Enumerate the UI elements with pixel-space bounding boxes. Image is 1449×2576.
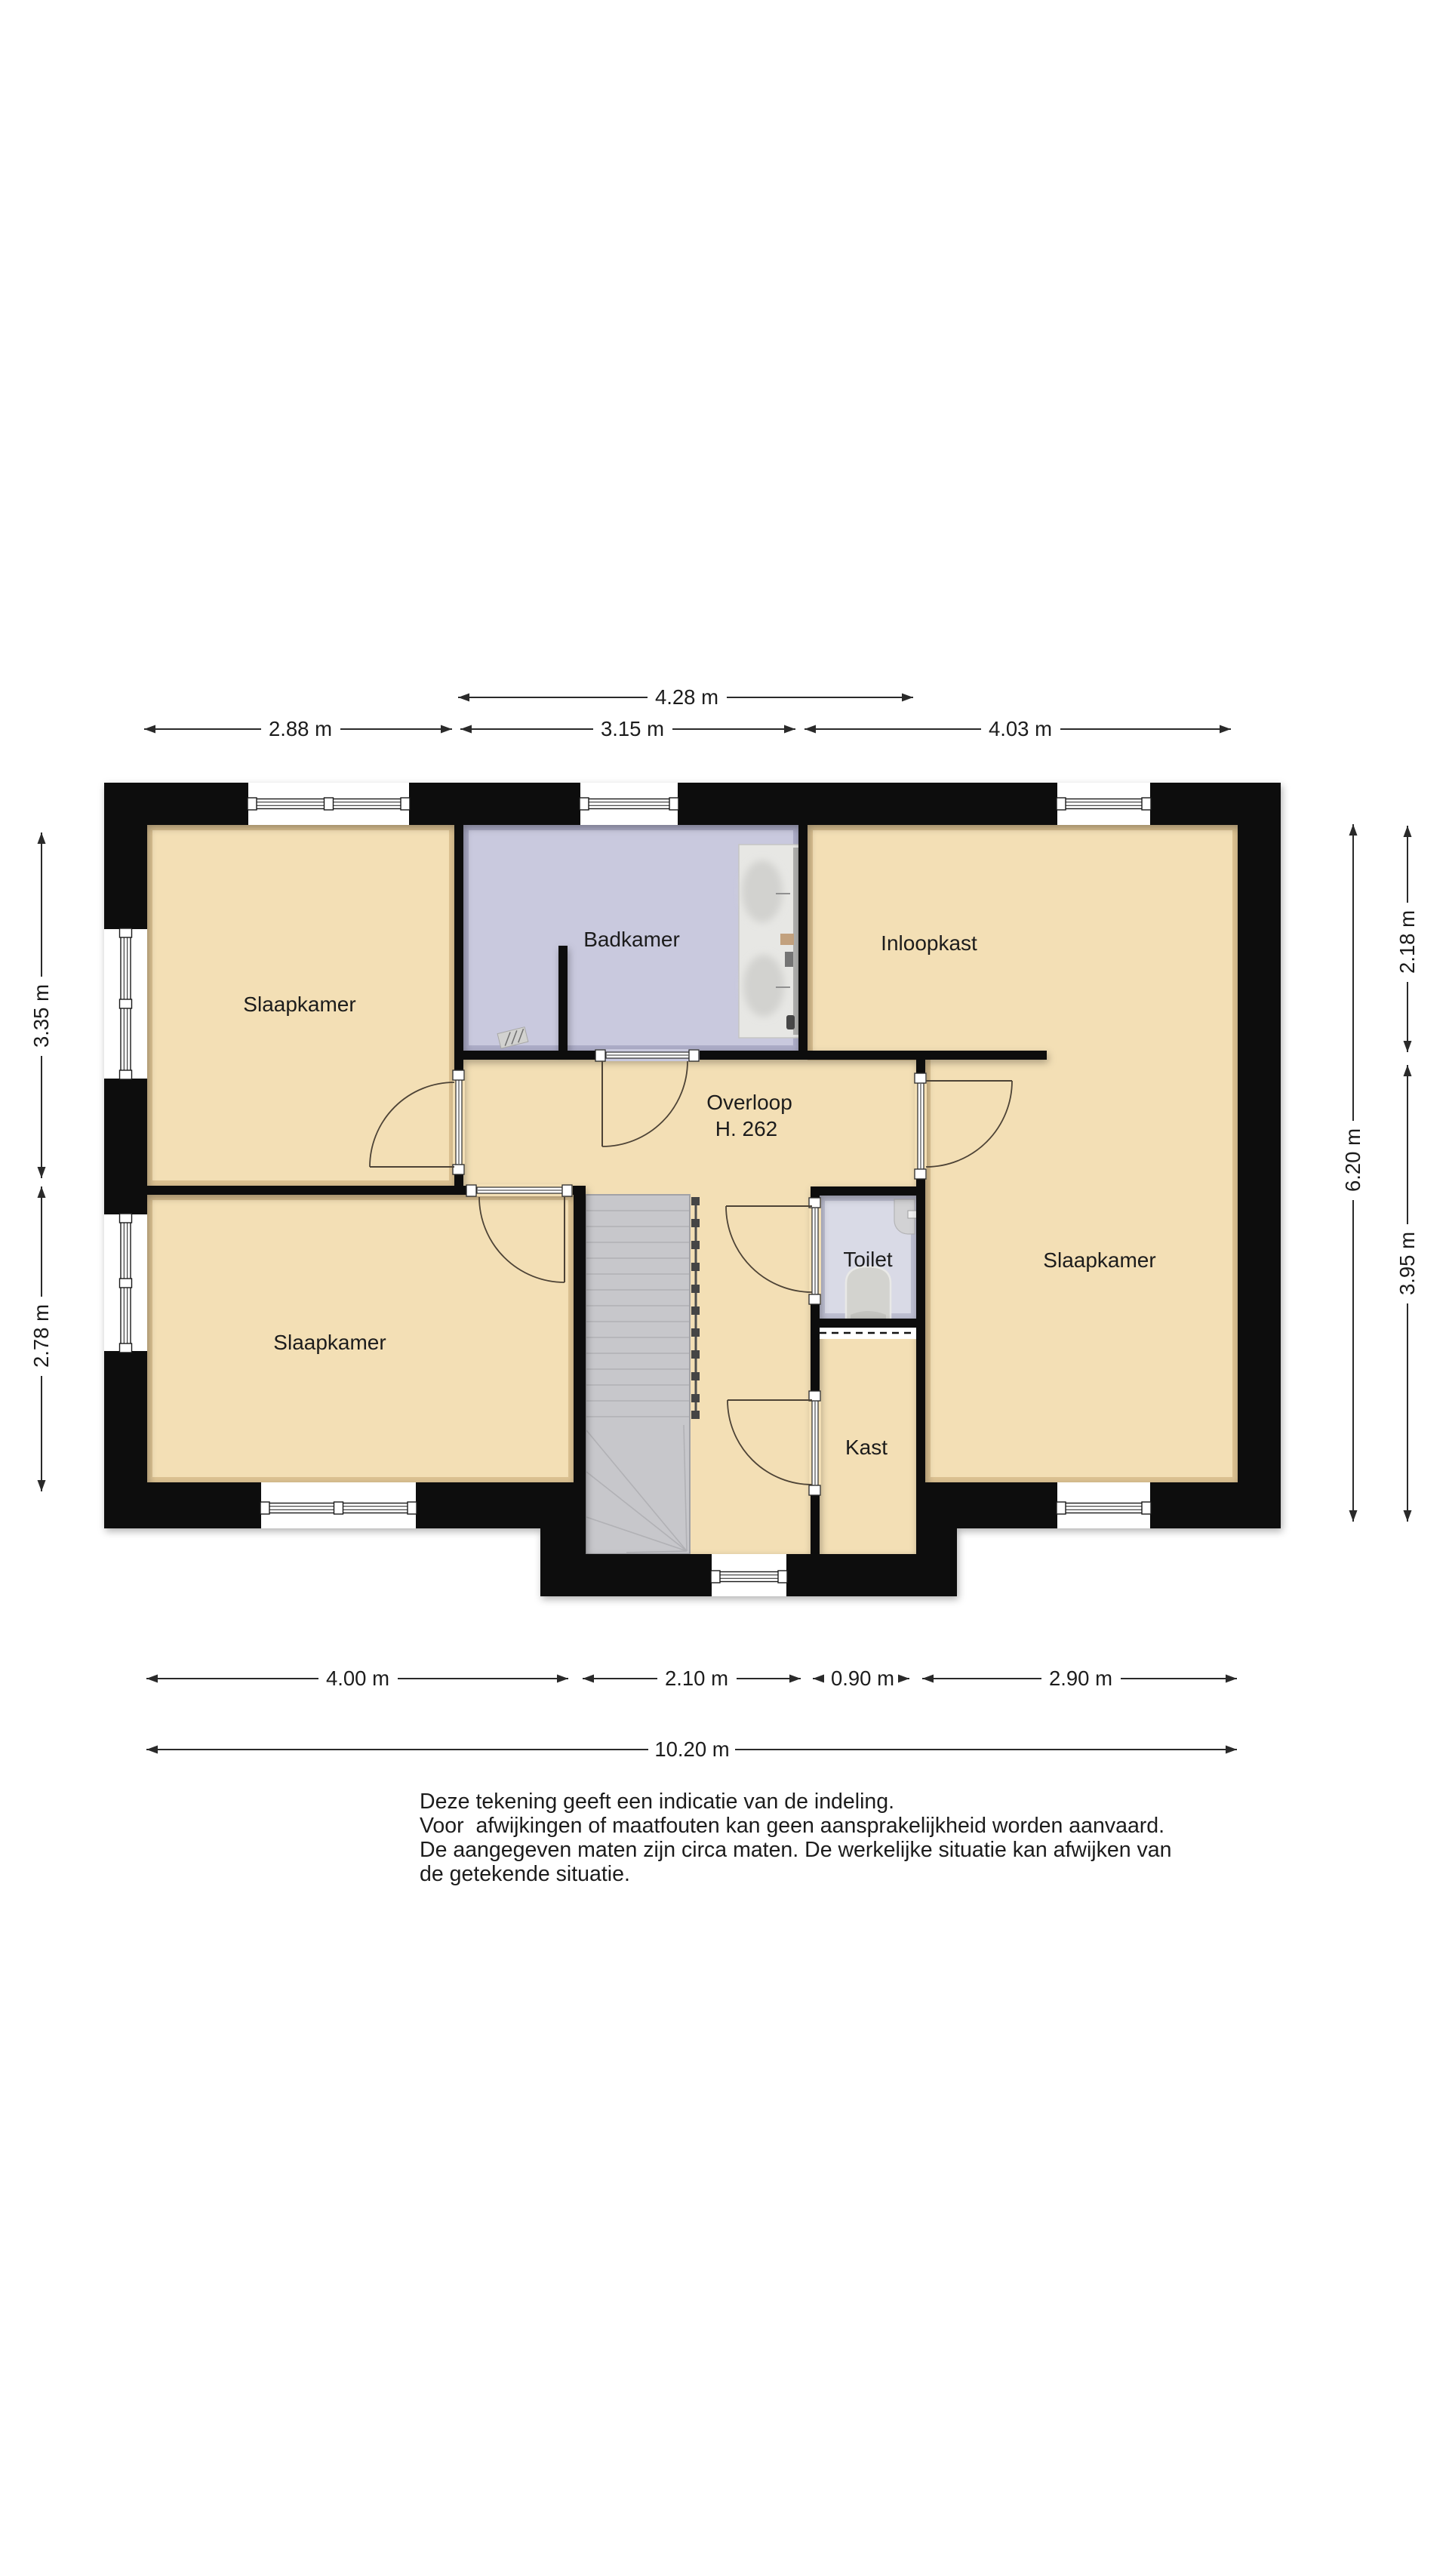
svg-text:10.20 m: 10.20 m <box>654 1737 729 1761</box>
svg-text:4.28 m: 4.28 m <box>655 685 718 709</box>
svg-text:Overloop: Overloop <box>706 1091 792 1114</box>
svg-text:2.88 m: 2.88 m <box>269 717 332 740</box>
svg-text:2.10 m: 2.10 m <box>665 1667 728 1690</box>
svg-text:Slaapkamer: Slaapkamer <box>273 1331 386 1354</box>
svg-text:Slaapkamer: Slaapkamer <box>243 993 355 1016</box>
svg-text:4.03 m: 4.03 m <box>989 717 1052 740</box>
svg-text:3.35 m: 3.35 m <box>29 984 53 1048</box>
svg-text:2.90 m: 2.90 m <box>1049 1667 1112 1690</box>
svg-text:Deze tekening geeft een indica: Deze tekening geeft een indicatie van de… <box>420 1790 894 1814</box>
svg-text:H. 262: H. 262 <box>715 1117 778 1140</box>
svg-text:3.95 m: 3.95 m <box>1395 1232 1419 1295</box>
svg-text:Voor afwijkingen of maatfoute: Voor afwijkingen of maatfouten kan geen … <box>420 1814 1164 1838</box>
svg-text:Kast: Kast <box>845 1436 888 1459</box>
svg-text:2.78 m: 2.78 m <box>29 1304 53 1368</box>
svg-text:Inloopkast: Inloopkast <box>881 931 977 955</box>
svg-text:6.20 m: 6.20 m <box>1341 1128 1364 1192</box>
svg-text:De aangegeven maten zijn circa: De aangegeven maten zijn circa maten. De… <box>420 1838 1171 1862</box>
svg-text:Slaapkamer: Slaapkamer <box>1043 1248 1155 1272</box>
svg-text:4.00 m: 4.00 m <box>326 1667 389 1690</box>
svg-text:0.90 m: 0.90 m <box>831 1667 894 1690</box>
svg-text:Toilet: Toilet <box>843 1248 893 1271</box>
svg-text:3.15 m: 3.15 m <box>601 717 664 740</box>
svg-text:Badkamer: Badkamer <box>583 928 680 951</box>
svg-text:2.18 m: 2.18 m <box>1395 910 1419 974</box>
svg-text:de getekende situatie.: de getekende situatie. <box>420 1862 630 1886</box>
